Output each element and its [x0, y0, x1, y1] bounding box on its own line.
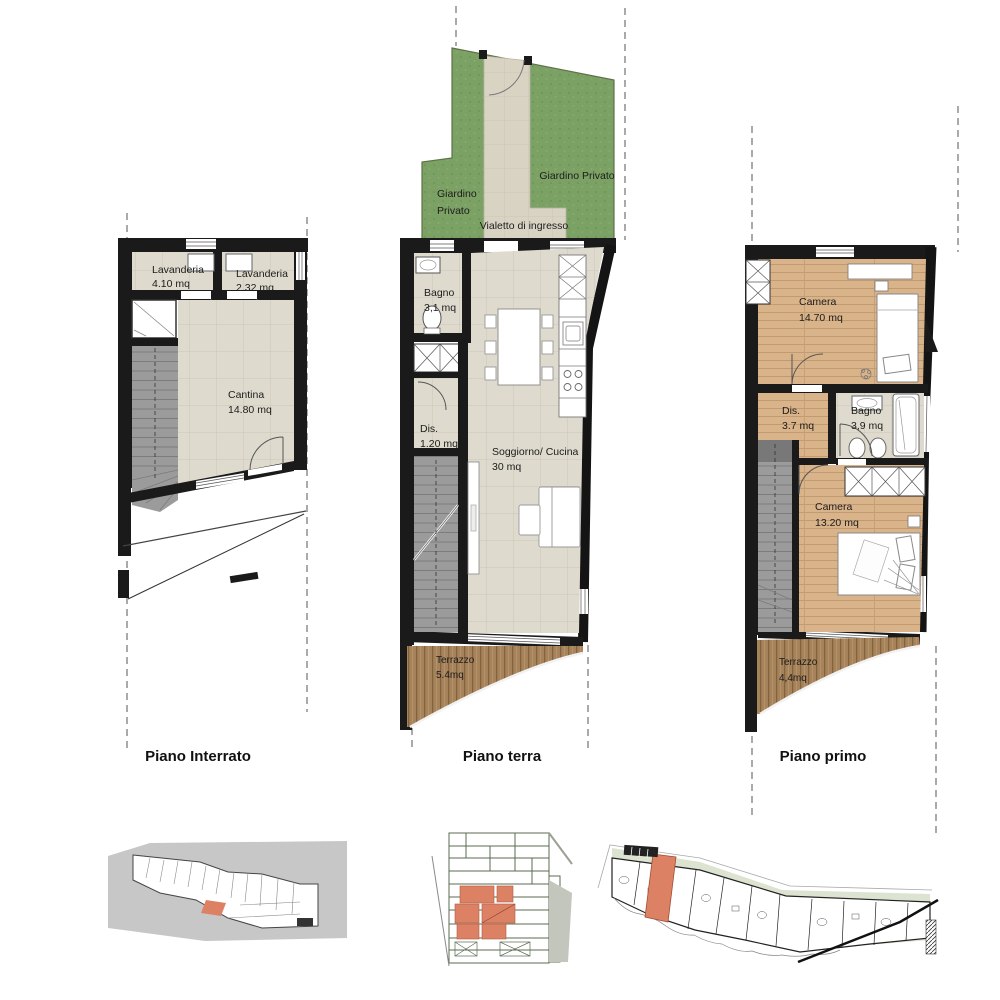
bed-single: [877, 294, 918, 382]
key-site-plan: [590, 835, 945, 975]
gate-post: [524, 56, 532, 65]
label-camera-1: Camera: [799, 296, 837, 308]
svg-text:1.20 mq: 1.20 mq: [420, 438, 458, 450]
label-giardino-left: Giardino: [437, 188, 477, 200]
label-bagno-primo: Bagno: [851, 405, 882, 417]
terrace-terra: [407, 646, 583, 727]
svg-text:2.32 mq: 2.32 mq: [236, 282, 274, 294]
stairs-terra: [414, 456, 458, 632]
key-section: [420, 825, 575, 980]
tv-cabinet: [468, 462, 479, 574]
label-dis-terra: Dis.: [420, 423, 438, 435]
label-dis-primo: Dis.: [782, 405, 800, 417]
gate-post: [479, 50, 487, 59]
floor-plan-terra: Giardino Privato Giardino Privato Vialet…: [395, 0, 645, 760]
label-giardino-right: Giardino Privato: [539, 170, 614, 182]
section-foundation: [455, 942, 530, 956]
svg-text:3,1 mq: 3,1 mq: [424, 302, 456, 314]
bidet: [849, 438, 865, 458]
svg-text:4,4mq: 4,4mq: [779, 673, 807, 684]
title-piano-terra: Piano terra: [463, 748, 541, 765]
nightstand: [908, 516, 920, 527]
interior-wall: [758, 384, 928, 393]
label-soggiorno: Soggiorno/ Cucina: [492, 446, 579, 458]
section-terrain-right: [549, 880, 572, 962]
bed-double: [838, 533, 920, 595]
svg-text:3,9 mq: 3,9 mq: [851, 420, 883, 432]
closet: [845, 467, 925, 496]
svg-text:13.20 mq: 13.20 mq: [815, 517, 859, 529]
label-lavanderia-2: Lavanderia: [236, 268, 288, 280]
svg-text:5.4mq: 5.4mq: [436, 670, 464, 681]
floor-plan-sheet: { "sheet": { "type": "architectural floo…: [0, 0, 1000, 1000]
interior-wall: [132, 338, 178, 346]
title-piano-interrato: Piano Interrato: [145, 748, 251, 765]
key-plan-garage: [95, 835, 355, 945]
svg-text:4.10 mq: 4.10 mq: [152, 278, 190, 290]
section-highlight-rooms: [455, 886, 515, 939]
sink: [416, 257, 440, 273]
label-vialetto: Vialetto di ingresso: [480, 220, 569, 232]
label-terrazzo-primo: Terrazzo: [779, 657, 818, 668]
title-piano-primo: Piano primo: [780, 748, 867, 765]
svg-text:14.70 mq: 14.70 mq: [799, 312, 843, 324]
label-terrazzo-terra: Terrazzo: [436, 655, 475, 666]
label-camera-2: Camera: [815, 501, 853, 513]
section-terrain-left: [432, 856, 449, 966]
interior-wall: [458, 342, 468, 642]
svg-text:14.80 mq: 14.80 mq: [228, 404, 272, 416]
section-roof: [549, 833, 572, 864]
floor-plan-primo: Camera 14.70 mq Dis. 3.7 mq Bagno 3,9 mq…: [730, 70, 975, 850]
floor-plan-interrato: Lavanderia 4.10 mq Lavanderia 2.32 mq Ca…: [100, 210, 330, 760]
kitchen-counter: [559, 255, 586, 417]
bathtub: [893, 394, 919, 456]
svg-text:Privato: Privato: [437, 205, 470, 217]
door-opening: [792, 385, 822, 392]
interior-wall: [828, 384, 836, 464]
label-bagno-terra: Bagno: [424, 287, 455, 299]
site-hatched-wall: [926, 920, 936, 954]
stairs-primo: [758, 440, 799, 632]
label-cantina: Cantina: [228, 389, 264, 401]
label-lavanderia-1: Lavanderia: [152, 264, 204, 276]
closet: [746, 260, 770, 304]
key-stair-block: [297, 918, 313, 926]
shower: [132, 300, 176, 338]
dining-table: [485, 309, 553, 385]
svg-text:3.7 mq: 3.7 mq: [782, 420, 814, 432]
svg-text:30 mq: 30 mq: [492, 461, 521, 473]
